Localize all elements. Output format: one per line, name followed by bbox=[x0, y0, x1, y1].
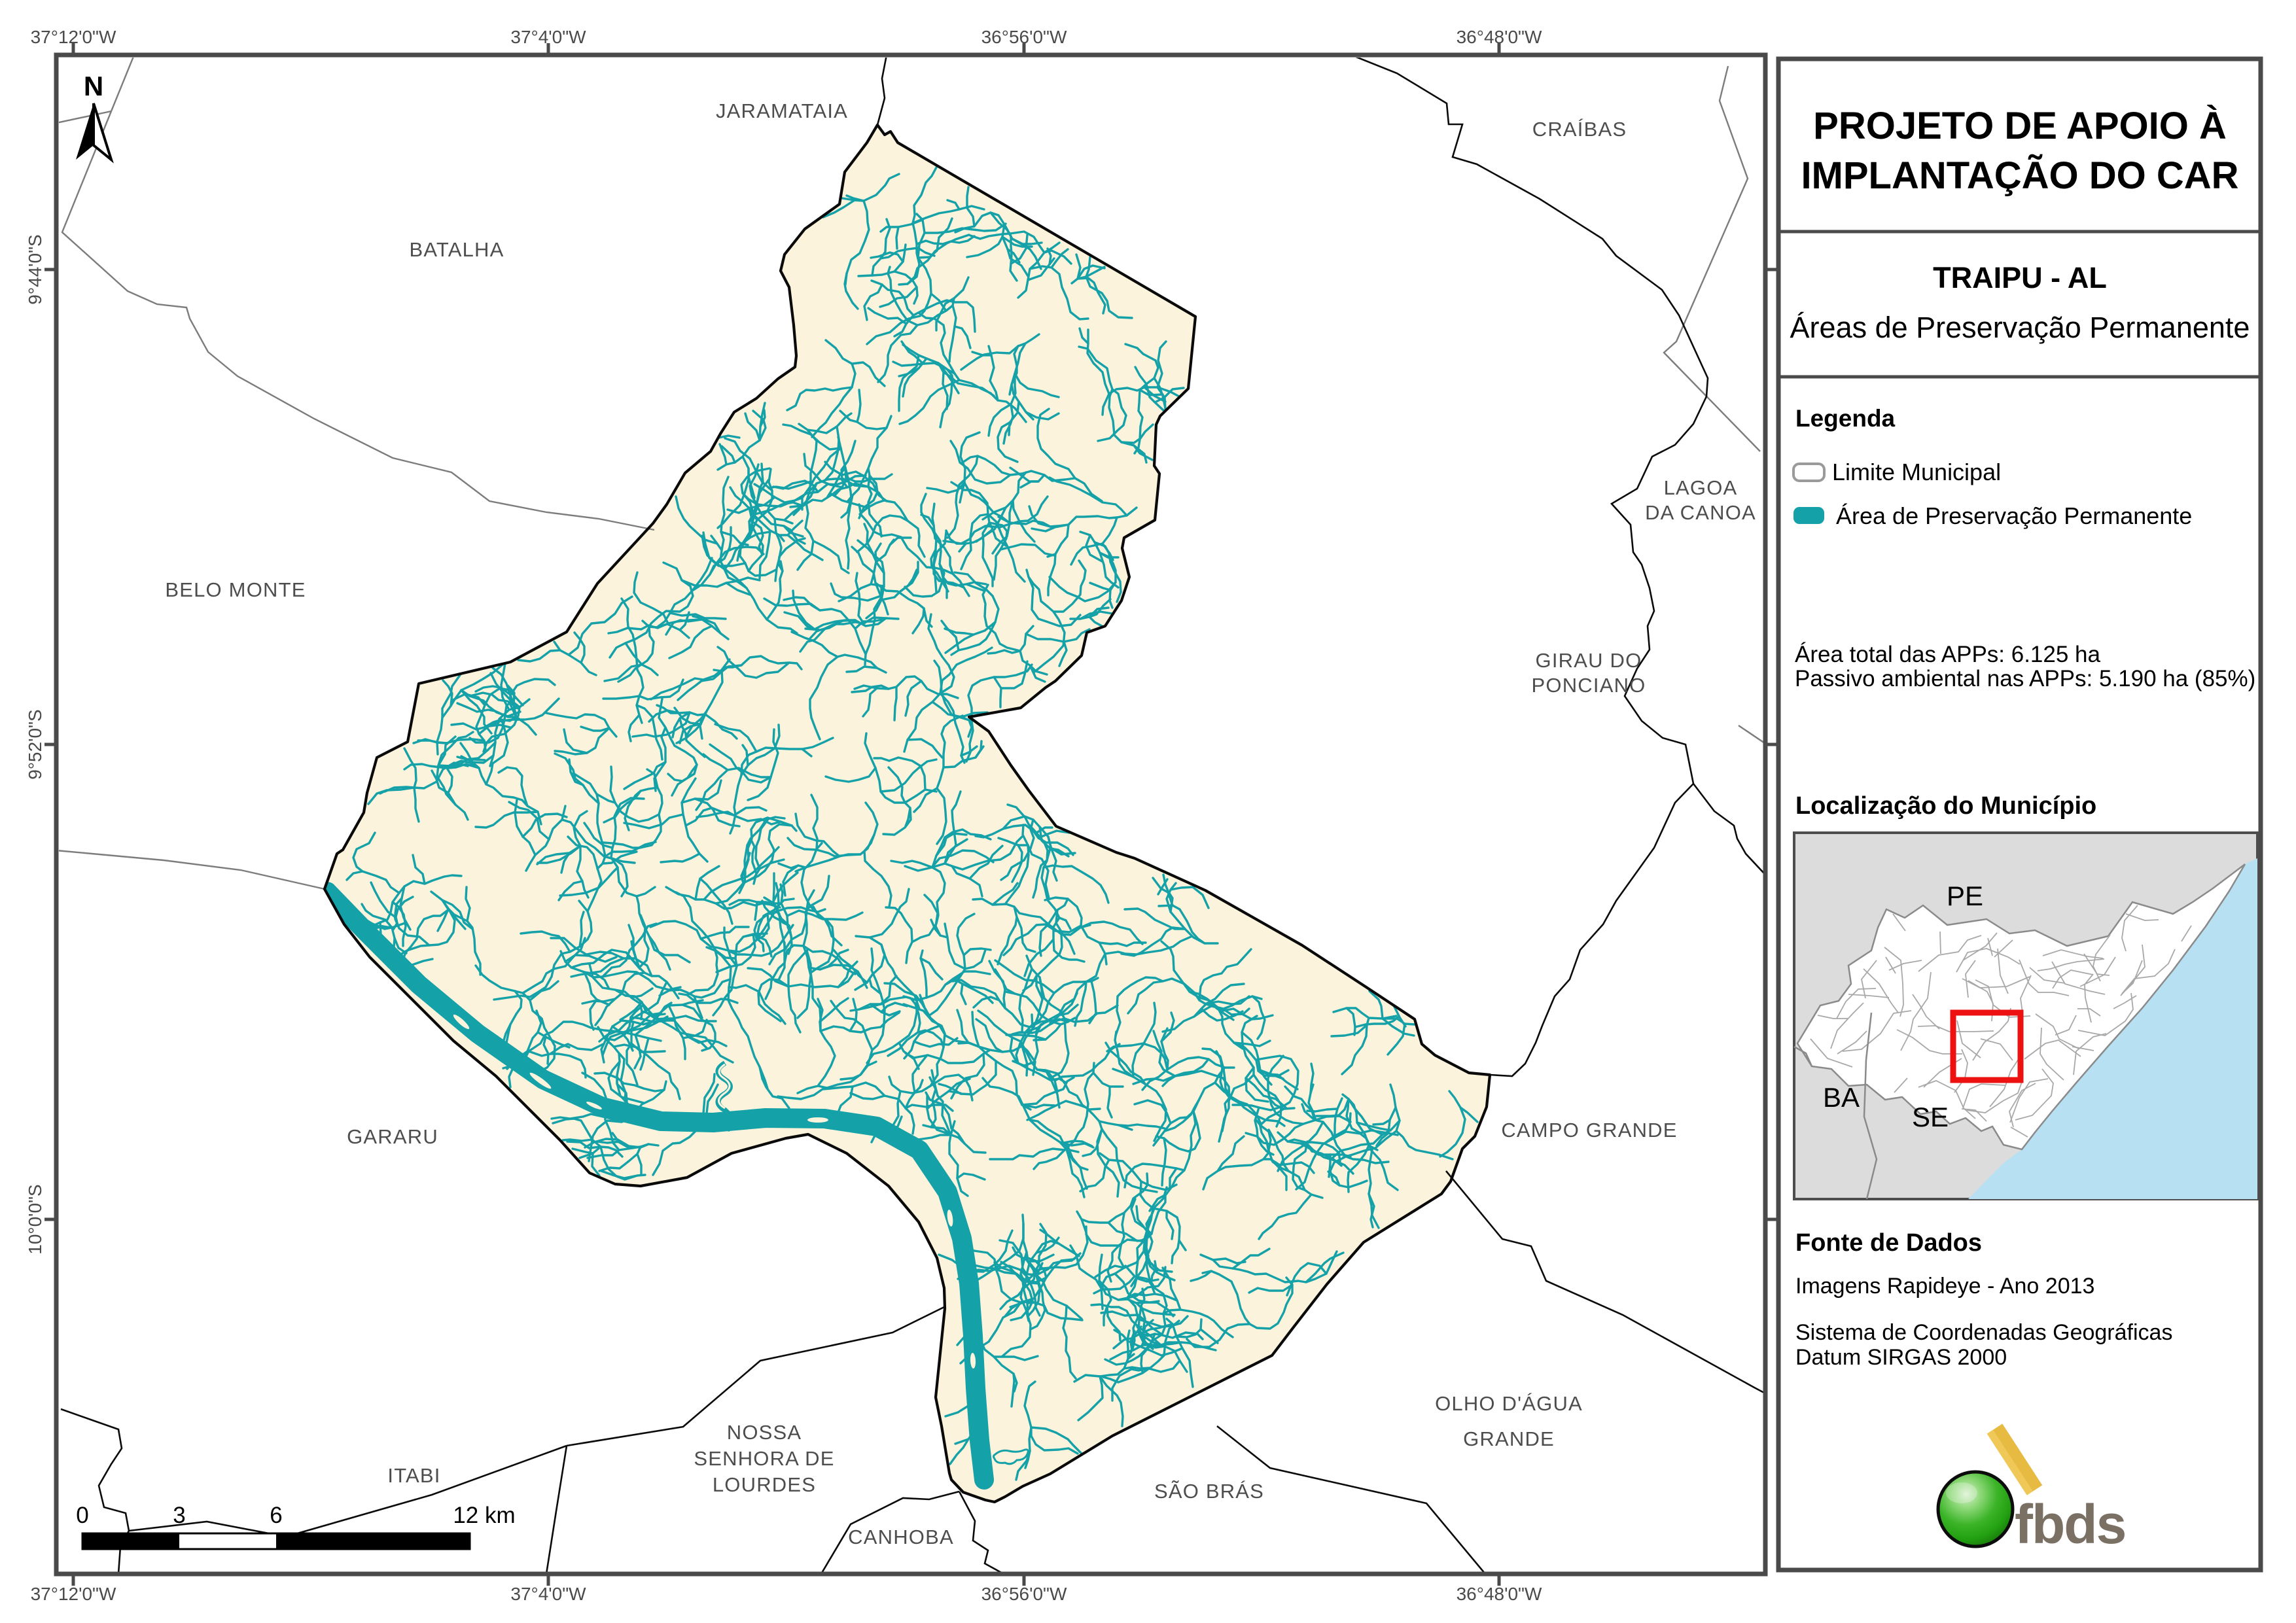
svg-text:Área total das APPs: 6.125 ha: Área total das APPs: 6.125 ha bbox=[1795, 642, 2101, 667]
svg-text:PROJETO DE APOIO À: PROJETO DE APOIO À bbox=[1813, 105, 2227, 147]
svg-text:Datum SIRGAS 2000: Datum SIRGAS 2000 bbox=[1795, 1345, 2007, 1370]
svg-text:Área de Preservação Permanente: Área de Preservação Permanente bbox=[1836, 502, 2192, 529]
svg-text:SE: SE bbox=[1912, 1102, 1949, 1132]
svg-text:IMPLANTAÇÃO DO CAR: IMPLANTAÇÃO DO CAR bbox=[1801, 154, 2238, 197]
svg-text:NOSSA: NOSSA bbox=[727, 1421, 802, 1444]
svg-text:Limite Municipal: Limite Municipal bbox=[1832, 459, 2001, 485]
svg-text:36°48'0"W: 36°48'0"W bbox=[1457, 1584, 1542, 1604]
svg-text:PE: PE bbox=[1947, 881, 1983, 911]
svg-text:Sistema de Coordenadas Geográf: Sistema de Coordenadas Geográficas bbox=[1795, 1320, 2172, 1345]
svg-text:9°44'0"S: 9°44'0"S bbox=[25, 234, 45, 304]
svg-text:37°4'0"W: 37°4'0"W bbox=[510, 1584, 586, 1604]
svg-text:6: 6 bbox=[270, 1503, 282, 1528]
svg-text:37°12'0"W: 37°12'0"W bbox=[31, 1584, 116, 1604]
svg-text:GIRAU DO: GIRAU DO bbox=[1536, 649, 1642, 672]
svg-text:OLHO D'ÁGUA: OLHO D'ÁGUA bbox=[1435, 1392, 1583, 1415]
svg-text:LOURDES: LOURDES bbox=[713, 1473, 816, 1496]
svg-text:Localização do Município: Localização do Município bbox=[1795, 792, 2096, 820]
svg-text:GARARU: GARARU bbox=[347, 1125, 438, 1148]
svg-text:36°56'0"W: 36°56'0"W bbox=[981, 1584, 1067, 1604]
svg-text:ITABI: ITABI bbox=[387, 1464, 440, 1487]
svg-text:fbds: fbds bbox=[2015, 1493, 2125, 1555]
svg-text:CAMPO GRANDE: CAMPO GRANDE bbox=[1501, 1119, 1677, 1142]
svg-text:JARAMATAIA: JARAMATAIA bbox=[716, 99, 848, 122]
svg-text:12 km: 12 km bbox=[453, 1503, 515, 1528]
svg-text:36°56'0"W: 36°56'0"W bbox=[981, 27, 1067, 47]
svg-text:3: 3 bbox=[173, 1503, 185, 1528]
svg-text:BATALHA: BATALHA bbox=[409, 238, 504, 261]
svg-text:SENHORA DE: SENHORA DE bbox=[694, 1447, 834, 1470]
svg-text:BELO MONTE: BELO MONTE bbox=[165, 578, 306, 601]
svg-text:GRANDE: GRANDE bbox=[1463, 1427, 1555, 1450]
svg-text:0: 0 bbox=[76, 1503, 88, 1528]
svg-text:9°52'0"S: 9°52'0"S bbox=[25, 709, 45, 779]
svg-text:DA CANOA: DA CANOA bbox=[1645, 501, 1756, 524]
svg-text:Imagens Rapideye - Ano 2013: Imagens Rapideye - Ano 2013 bbox=[1795, 1274, 2094, 1299]
svg-text:LAGOA: LAGOA bbox=[1664, 476, 1738, 499]
svg-text:Legenda: Legenda bbox=[1795, 405, 1896, 432]
svg-text:37°4'0"W: 37°4'0"W bbox=[510, 27, 586, 47]
svg-text:SÃO BRÁS: SÃO BRÁS bbox=[1154, 1480, 1264, 1503]
svg-text:PONCIANO: PONCIANO bbox=[1532, 674, 1646, 697]
svg-text:CANHOBA: CANHOBA bbox=[848, 1526, 954, 1548]
svg-text:Passivo ambiental nas APPs: 5.: Passivo ambiental nas APPs: 5.190 ha (85… bbox=[1795, 666, 2255, 691]
svg-text:CRAÍBAS: CRAÍBAS bbox=[1532, 118, 1627, 141]
svg-text:BA: BA bbox=[1823, 1082, 1860, 1113]
svg-text:Fonte de Dados: Fonte de Dados bbox=[1795, 1229, 1982, 1257]
svg-text:N: N bbox=[84, 71, 103, 101]
svg-text:36°48'0"W: 36°48'0"W bbox=[1457, 27, 1542, 47]
svg-text:37°12'0"W: 37°12'0"W bbox=[31, 27, 116, 47]
svg-text:Áreas de Preservação Permanent: Áreas de Preservação Permanente bbox=[1790, 311, 2250, 344]
svg-text:TRAIPU - AL: TRAIPU - AL bbox=[1933, 261, 2107, 294]
svg-text:10°0'0"S: 10°0'0"S bbox=[25, 1184, 45, 1254]
